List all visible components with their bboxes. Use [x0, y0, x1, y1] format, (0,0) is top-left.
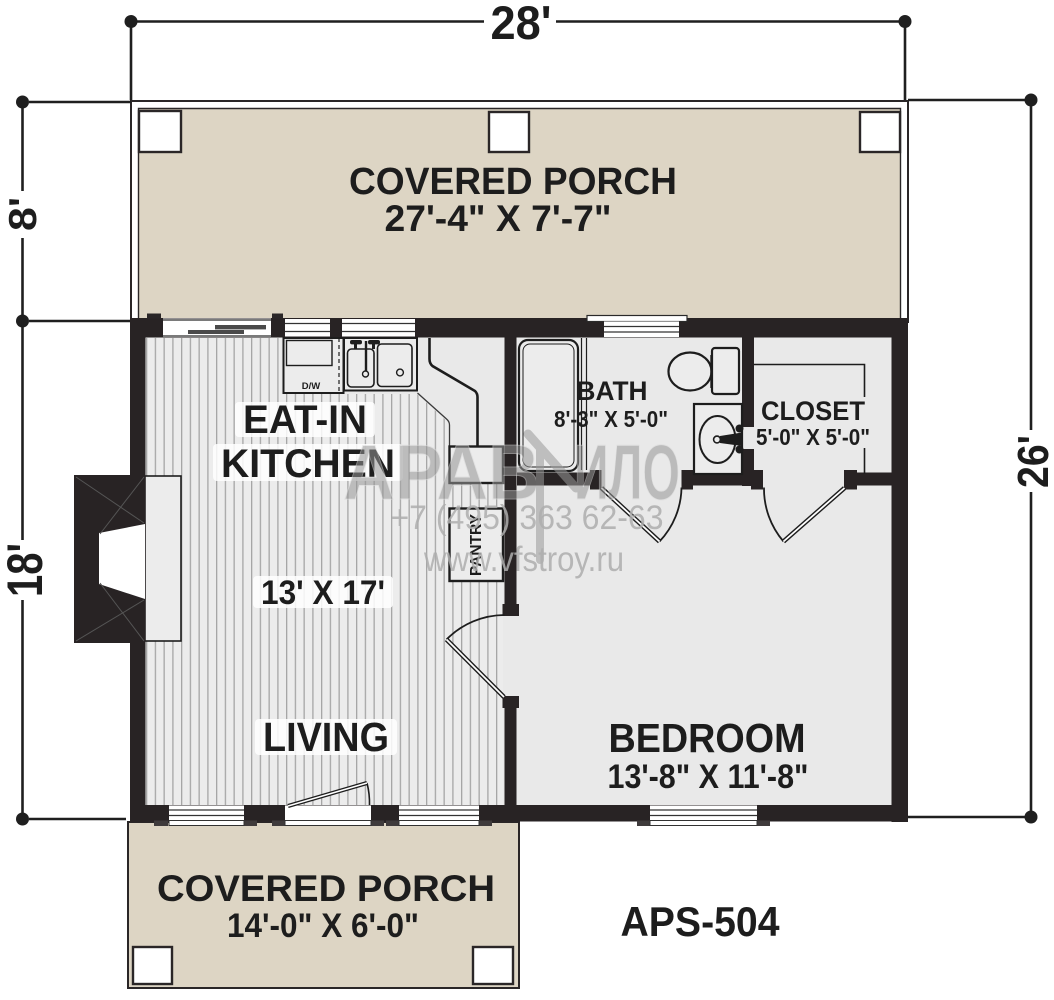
svg-text:8': 8': [2, 197, 45, 231]
svg-text:COVERED PORCH: COVERED PORCH: [349, 161, 677, 203]
svg-text:+7 (495) 363 62-63: +7 (495) 363 62-63: [391, 499, 664, 537]
svg-text:BEDROOM: BEDROOM: [609, 715, 806, 761]
svg-text:13' X 17': 13' X 17': [261, 574, 385, 612]
svg-text:14'-0" X 6'-0": 14'-0" X 6'-0": [227, 907, 419, 945]
svg-text:CLOSET: CLOSET: [761, 396, 865, 426]
svg-text:APS-504: APS-504: [621, 898, 781, 945]
svg-text:5'-0" X 5'-0": 5'-0" X 5'-0": [756, 424, 870, 450]
svg-text:www.vfstroy.ru: www.vfstroy.ru: [423, 540, 624, 579]
svg-text:BATH: BATH: [577, 376, 648, 406]
svg-text:D/W: D/W: [302, 381, 321, 392]
svg-text:LIVING: LIVING: [263, 714, 389, 760]
svg-text:26': 26': [1009, 435, 1054, 488]
svg-text:28': 28': [491, 0, 552, 49]
svg-text:COVERED PORCH: COVERED PORCH: [157, 868, 495, 909]
svg-text:13'-8" X 11'-8": 13'-8" X 11'-8": [608, 758, 809, 796]
svg-text:27'-4" X 7'-7": 27'-4" X 7'-7": [385, 198, 612, 239]
svg-text:18': 18': [0, 543, 53, 597]
